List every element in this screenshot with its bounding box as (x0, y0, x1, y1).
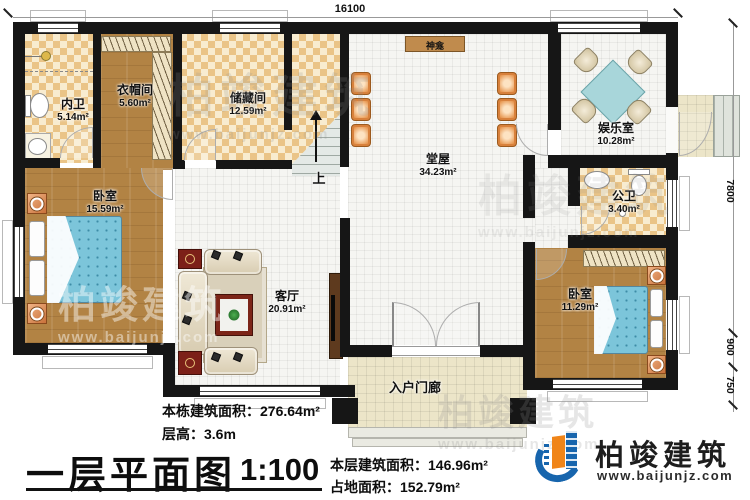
side-table (178, 249, 202, 269)
wall-inner-bath-east (93, 34, 101, 168)
room-label-living: 客厅20.91m² (268, 290, 305, 315)
wall-storage-south-right (216, 160, 292, 169)
coffee-table (215, 294, 253, 336)
dimension-line-top (13, 17, 678, 18)
nightstand (27, 193, 47, 214)
hall-chair (351, 98, 371, 121)
cloakroom-closet-side (152, 52, 172, 160)
wall-inner-bath-south (13, 158, 60, 168)
logo-building-blue-icon (566, 431, 577, 469)
nightstand (647, 266, 666, 285)
bed-pillow (29, 221, 45, 257)
sill-storage (212, 10, 288, 22)
window-bedroom-left-south (48, 344, 147, 354)
sill-entertainment (550, 10, 648, 22)
wall-hall-west-lower (340, 218, 350, 357)
window-living-south (200, 386, 320, 396)
company-website: www.baijunjz.com (597, 468, 733, 483)
nightstand (27, 303, 47, 324)
room-label-entertainment: 娱乐室10.28m² (597, 122, 634, 147)
room-label-cloakroom: 衣帽间5.60m² (117, 84, 153, 109)
entry-steps-2 (352, 438, 523, 447)
side-porch-steps (713, 95, 740, 157)
room-label-main-hall: 堂屋34.23m² (419, 153, 456, 178)
wall-entertainment-west (548, 34, 561, 130)
window-entertainment-north (558, 23, 640, 33)
wall-storage-south-left (173, 160, 185, 169)
room-label-bedroom-right: 卧室11.29m² (562, 288, 599, 313)
sill-public-bath-east (679, 176, 690, 231)
window-inner-bath-north (38, 23, 78, 33)
wall-entertainment-south (548, 155, 678, 168)
shower-head-icon (41, 51, 51, 61)
room-label-entry-porch: 入户门廊 (389, 381, 441, 396)
bed-pillow (650, 320, 663, 348)
main-hall-floor (348, 34, 548, 345)
stairs-arrow-head-icon (310, 110, 322, 120)
shower-partition (25, 71, 93, 72)
logo-building-orange-icon (552, 435, 565, 469)
toilet-bowl (30, 93, 49, 118)
room-label-inner-bath: 内卫5.14m² (57, 98, 89, 123)
nightstand (647, 355, 666, 374)
entry-steps-1 (348, 427, 527, 438)
hall-chair (351, 124, 371, 147)
window-storage-north (220, 23, 280, 33)
stairs-up-label: 上 (312, 172, 325, 187)
wall-left (13, 34, 25, 355)
wall-stairs-west (284, 34, 292, 130)
sill-bedroom-right-south (547, 391, 648, 402)
logo-dots-icon (544, 444, 549, 466)
bed-pillow (29, 260, 45, 296)
window-bedroom-left-west (14, 227, 24, 297)
sill-inner-bath (30, 10, 86, 22)
main-entrance-threshold (392, 346, 480, 356)
stairs-direction-arrow (315, 120, 317, 162)
hall-chair (497, 72, 517, 95)
room-label-public-bath: 公卫3.40m² (608, 190, 640, 215)
porch-column-right (510, 398, 536, 424)
tv-screen (331, 295, 335, 341)
dimension-steps-depth: 750 (724, 363, 736, 407)
wall-east-1 (666, 22, 678, 107)
window-public-bath-east (667, 180, 677, 227)
wall-cloakroom-east (173, 34, 182, 168)
porch-column-left (332, 398, 358, 424)
shrine-label: 神龛 (426, 41, 444, 51)
window-bedroom-right-east (667, 300, 677, 350)
sill-bedroom-left-west (2, 220, 13, 304)
wall-public-bath-west (568, 168, 580, 206)
wall-bedroom-right-north (568, 235, 678, 248)
company-logo: 柏竣建筑 www.baijunjz.com (535, 428, 745, 490)
wall-hall-east-upper (523, 155, 535, 218)
title-underline (26, 488, 322, 491)
shrine-shelf: 神龛 (405, 36, 465, 52)
side-door-opening (666, 107, 678, 153)
hall-chair (351, 72, 371, 95)
footprint-area-text: 占地面积：152.79m² (330, 477, 460, 497)
sink (28, 138, 47, 155)
hall-chair (497, 98, 517, 121)
wall-hall-west-upper (340, 34, 349, 167)
cloakroom-closet-top (101, 36, 171, 52)
dimension-right-height: 7800 (724, 169, 736, 213)
floor-height-text: 层高：3.6m (162, 424, 236, 444)
floor-area-text: 本层建筑面积：146.96m² (330, 455, 488, 475)
sill-bedroom-right-east (679, 296, 690, 354)
wall-east-4 (666, 350, 678, 390)
sofa-chaise (204, 347, 258, 375)
floor-plan-canvas: 上 (0, 0, 750, 500)
plan-scale: 1:100 (240, 452, 319, 488)
plant-icon (229, 310, 240, 321)
wardrobe (583, 250, 665, 267)
side-table (178, 351, 202, 375)
dimension-tick (3, 8, 13, 18)
room-label-storage: 储藏间12.59m² (229, 92, 266, 117)
window-bedroom-right-south (553, 379, 642, 389)
room-label-bedroom-left: 卧室15.59m² (86, 190, 123, 215)
dimension-top-width: 16100 (322, 3, 378, 15)
wall-hall-east-lower (523, 242, 535, 390)
bed-pillow (650, 289, 663, 317)
building-total-area-text: 本栋建筑面积：276.64m² (162, 401, 320, 421)
sink (584, 171, 610, 189)
sill-bedroom-left-south (42, 356, 153, 369)
sofa-long (178, 271, 208, 355)
hall-chair (497, 124, 517, 147)
